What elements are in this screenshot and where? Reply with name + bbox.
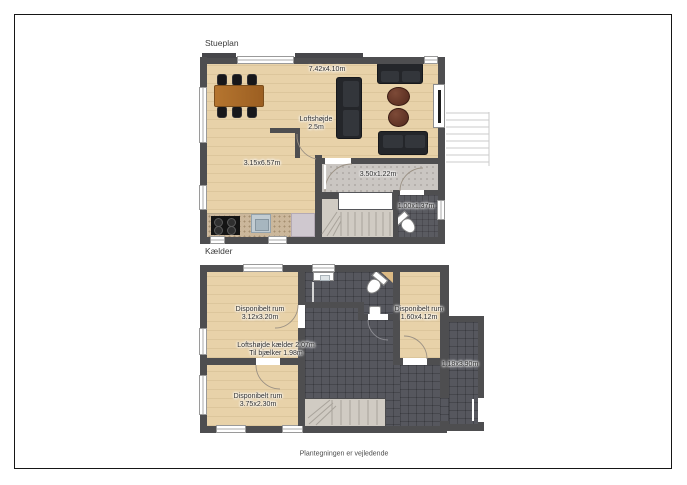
wall-segment (200, 426, 216, 433)
sink-basin (255, 219, 269, 231)
ceiling-line2: 2.5m (308, 124, 324, 131)
wall-segment (200, 143, 207, 185)
basement-stair-floor (305, 398, 386, 427)
door-opening (368, 314, 388, 320)
window (424, 56, 438, 64)
wall-segment (283, 265, 312, 272)
basement-extension-floor (449, 322, 478, 424)
dining-chair (232, 106, 242, 118)
window (199, 375, 207, 415)
ceiling-line1: Loftshøjde kælder 2.07m (237, 342, 314, 349)
dining-table (214, 85, 264, 107)
sofa-top-right (377, 62, 423, 84)
window (199, 87, 207, 143)
wall-segment (438, 128, 445, 200)
kitchen-appliance (291, 213, 315, 237)
room-name: Disponibelt rum (395, 306, 444, 313)
wall-segment (303, 426, 447, 433)
wall-segment (280, 358, 305, 365)
wall-segment (225, 237, 268, 244)
wall-segment (440, 265, 449, 398)
wall-segment (424, 190, 438, 195)
dining-chair (247, 106, 257, 118)
sofa-mid-right (378, 131, 428, 155)
wall-segment (443, 424, 484, 431)
wall-segment (294, 57, 424, 64)
wall-segment (351, 158, 438, 164)
window (312, 264, 335, 272)
door-opening (298, 305, 305, 328)
pouf-symbol (388, 108, 409, 127)
window (268, 236, 287, 244)
wall-segment (295, 128, 300, 158)
door-opening (403, 358, 427, 365)
wall-segment (322, 192, 338, 198)
window (210, 236, 225, 244)
washbasin-symbol (313, 272, 334, 281)
floor-title-kaelder: Kælder (205, 246, 232, 256)
window (237, 56, 294, 64)
wall-segment (393, 190, 398, 238)
wall-pilaster (202, 53, 236, 58)
wall-pilaster (295, 53, 363, 58)
basin (320, 275, 330, 281)
wall-segment (438, 57, 445, 84)
basement-passage-floor (440, 398, 449, 421)
floor-title-stueplan: Stueplan (205, 38, 239, 48)
basement-hall-floor (400, 365, 440, 426)
dim-label-extension: 1.18x3.90m (442, 361, 479, 369)
burner (227, 226, 236, 235)
window (243, 264, 283, 272)
shower-partition (312, 282, 314, 303)
wall-segment (246, 426, 282, 433)
ceiling-height-label: Loftshøjde 2.5m (300, 116, 333, 132)
room-label-right: Disponibelt rum 1.60x4.12m (395, 306, 444, 322)
wall-segment (393, 358, 403, 365)
wall-segment (200, 265, 207, 328)
window-tall (433, 84, 445, 128)
door-opening (256, 358, 280, 365)
dining-chair (217, 106, 227, 118)
room-dims: 1.60x4.12m (401, 314, 438, 321)
kitchen-sink-symbol (251, 214, 271, 233)
door-opening (478, 398, 484, 422)
stove-symbol (211, 216, 240, 235)
wall-segment (315, 155, 322, 237)
room-name: Disponibelt rum (236, 306, 285, 313)
pouf-symbol (387, 87, 410, 106)
sofa-vertical (336, 77, 362, 139)
room-label-topleft: Disponibelt rum 3.12x3.20m (236, 306, 285, 322)
stair-void (338, 192, 393, 210)
room-name: Disponibelt rum (234, 393, 283, 400)
window (199, 185, 207, 210)
window (282, 425, 303, 433)
window (216, 425, 246, 433)
wall-segment (200, 358, 256, 365)
wall-segment (478, 316, 484, 398)
wall-segment (305, 302, 364, 308)
door-opening (400, 190, 424, 195)
burner (214, 226, 223, 235)
window-mullion (438, 90, 441, 123)
wall-segment (335, 265, 447, 272)
room-dims: 3.12x3.20m (242, 314, 279, 321)
wall-segment (200, 57, 207, 87)
ceiling-line2: Til bjælker 1.98m (249, 350, 302, 357)
wall-segment (287, 237, 445, 244)
dim-label-living: 7.42x4.10m (309, 66, 346, 74)
wall-segment (200, 237, 210, 244)
basement-ceiling-label: Loftshøjde kælder 2.07m Til bjælker 1.98… (237, 342, 314, 358)
dim-label-wc: 1.00x1.37m (398, 203, 435, 211)
dim-label-hall: 3.50x1.22m (360, 171, 397, 179)
floorplan-page: Stueplan (0, 0, 687, 485)
window (199, 328, 207, 355)
door-opening (325, 158, 351, 164)
window (437, 200, 445, 220)
plan-disclaimer: Plantegningen er vejledende (300, 451, 389, 458)
dim-label-kitchen: 3.15x6.57m (244, 160, 281, 168)
room-dims: 3.75x2.30m (240, 401, 277, 408)
wall-segment (298, 272, 305, 305)
ceiling-line1: Loftshøjde (300, 116, 333, 123)
room-label-bottomleft: Disponibelt rum 3.75x2.30m (234, 393, 283, 409)
